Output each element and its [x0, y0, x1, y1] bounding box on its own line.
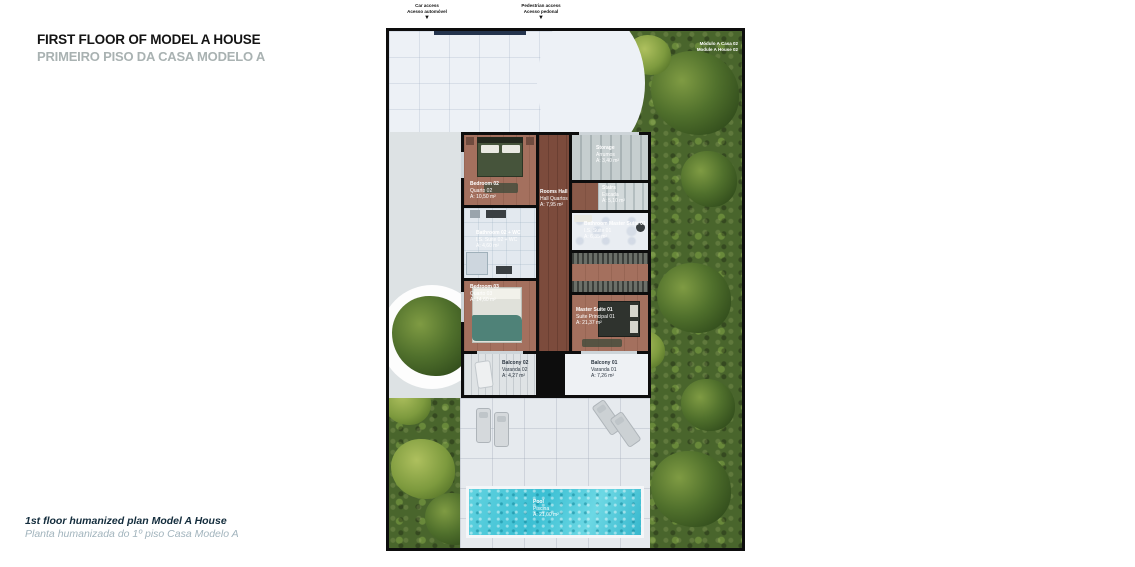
room-label: Balcony 02 Varanda 02 A: 4,27 m²: [502, 360, 528, 380]
room-label: Stairs Escada A: 5,10 m²: [602, 185, 625, 205]
rug: [582, 339, 622, 347]
tree: [651, 451, 731, 527]
pillow: [481, 145, 499, 153]
pedestrian-access-pt: Acesso pedonal: [510, 9, 572, 15]
room-closet: [572, 253, 648, 292]
room-balcony-01: Balcony 01 Varanda 01 A: 7,26 m²: [565, 354, 648, 395]
caption: 1st floor humanized plan Model A House P…: [25, 515, 239, 540]
pillow: [502, 145, 520, 153]
vanity: [486, 210, 506, 218]
landing-floor: [572, 183, 598, 210]
page: FIRST FLOOR OF MODEL A HOUSE PRIMEIRO PI…: [0, 0, 1135, 567]
room-label: Storage Arrumos A: 3,40 m²: [596, 145, 619, 165]
room-hall: Rooms Hall Hall Quartos A: 7,95 m²: [539, 135, 569, 351]
module-label-pt: Módulo A Casa 02: [697, 41, 738, 47]
site-plan: Módulo A Casa 02 Module A House 02 Bed: [386, 28, 745, 551]
page-title: FIRST FLOOR OF MODEL A HOUSE: [37, 32, 265, 47]
bed-headboard: [477, 137, 523, 143]
terrace: Pool Piscina A: 21,00 m²: [460, 398, 650, 548]
module-label-en: Module A House 02: [697, 47, 738, 53]
room-bedroom-03: Bedroom 03 Quarto 03 A: 14,60 m²: [464, 281, 536, 351]
sun-lounger: [476, 408, 491, 443]
page-subtitle: PRIMEIRO PISO DA CASA MODELO A: [37, 49, 265, 64]
room-master-suite: Master Suite 01 Suite Principal 01 A: 21…: [572, 295, 648, 351]
sun-lounger: [494, 412, 509, 447]
room-label: Balcony 01 Varanda 01 A: 7,26 m²: [591, 360, 617, 380]
clothes-rack: [572, 253, 648, 264]
caption-pt: Planta humanizada do 1º piso Casa Modelo…: [25, 528, 239, 540]
tree: [392, 296, 472, 376]
tree: [681, 379, 735, 431]
car-access-label: Car access Acesso automóvel ▼: [396, 3, 458, 23]
down-arrow-icon: ▼: [510, 15, 572, 23]
pillow: [630, 305, 638, 317]
room-label: Bedroom 02 Quarto 02 A: 10,50 m²: [470, 181, 499, 201]
room-label: Rooms Hall Hall Quartos A: 7,95 m²: [540, 189, 568, 209]
room-bathroom-master: Bathroom Master Suite 01 I.S. Suite 01 A…: [572, 213, 648, 250]
entrance-gate: [434, 31, 526, 35]
room-label: Bedroom 03 Quarto 03 A: 14,60 m²: [470, 284, 499, 304]
blanket: [472, 315, 522, 341]
room-bathroom-02: Bathroom 02 + WC I.S. Suite 02 + WC A: 4…: [464, 208, 536, 278]
tree: [657, 263, 731, 333]
module-label: Módulo A Casa 02 Module A House 02: [697, 41, 738, 53]
clothes-rack: [572, 281, 648, 292]
car-access-pt: Acesso automóvel: [396, 9, 458, 15]
bed: [477, 137, 523, 177]
room-label: Bathroom 02 + WC I.S. Suite 02 + WC A: 4…: [476, 230, 521, 250]
nightstand: [526, 137, 534, 145]
lounge-chair: [474, 360, 494, 389]
caption-en: 1st floor humanized plan Model A House: [25, 515, 239, 527]
room-balcony-02: Balcony 02 Varanda 02 A: 4,27 m²: [464, 354, 536, 395]
room-storage: Storage Arrumos A: 3,40 m²: [572, 135, 648, 180]
pillow: [630, 321, 638, 333]
nightstand: [466, 137, 474, 145]
down-arrow-icon: ▼: [396, 15, 458, 23]
house: Bedroom 02 Quarto 02 A: 10,50 m² Bathroo…: [461, 132, 651, 398]
pedestrian-access-label: Pedestrian access Acesso pedonal ▼: [510, 3, 572, 23]
vanity: [496, 266, 512, 274]
tree: [391, 439, 455, 499]
swimming-pool: Pool Piscina A: 21,00 m²: [466, 486, 644, 538]
toilet: [470, 210, 480, 218]
room-bedroom-02: Bedroom 02 Quarto 02 A: 10,50 m²: [464, 135, 536, 205]
room-label: Master Suite 01 Suite Principal 01 A: 21…: [576, 307, 615, 327]
room-label: Pool Piscina A: 21,00 m²: [533, 499, 559, 519]
shower: [466, 252, 488, 275]
room-stairs: Stairs Escada A: 5,10 m²: [572, 183, 648, 210]
room-label: Bathroom Master Suite 01 I.S. Suite 01 A…: [584, 221, 646, 241]
title-block: FIRST FLOOR OF MODEL A HOUSE PRIMEIRO PI…: [37, 32, 265, 64]
tree: [681, 151, 737, 207]
